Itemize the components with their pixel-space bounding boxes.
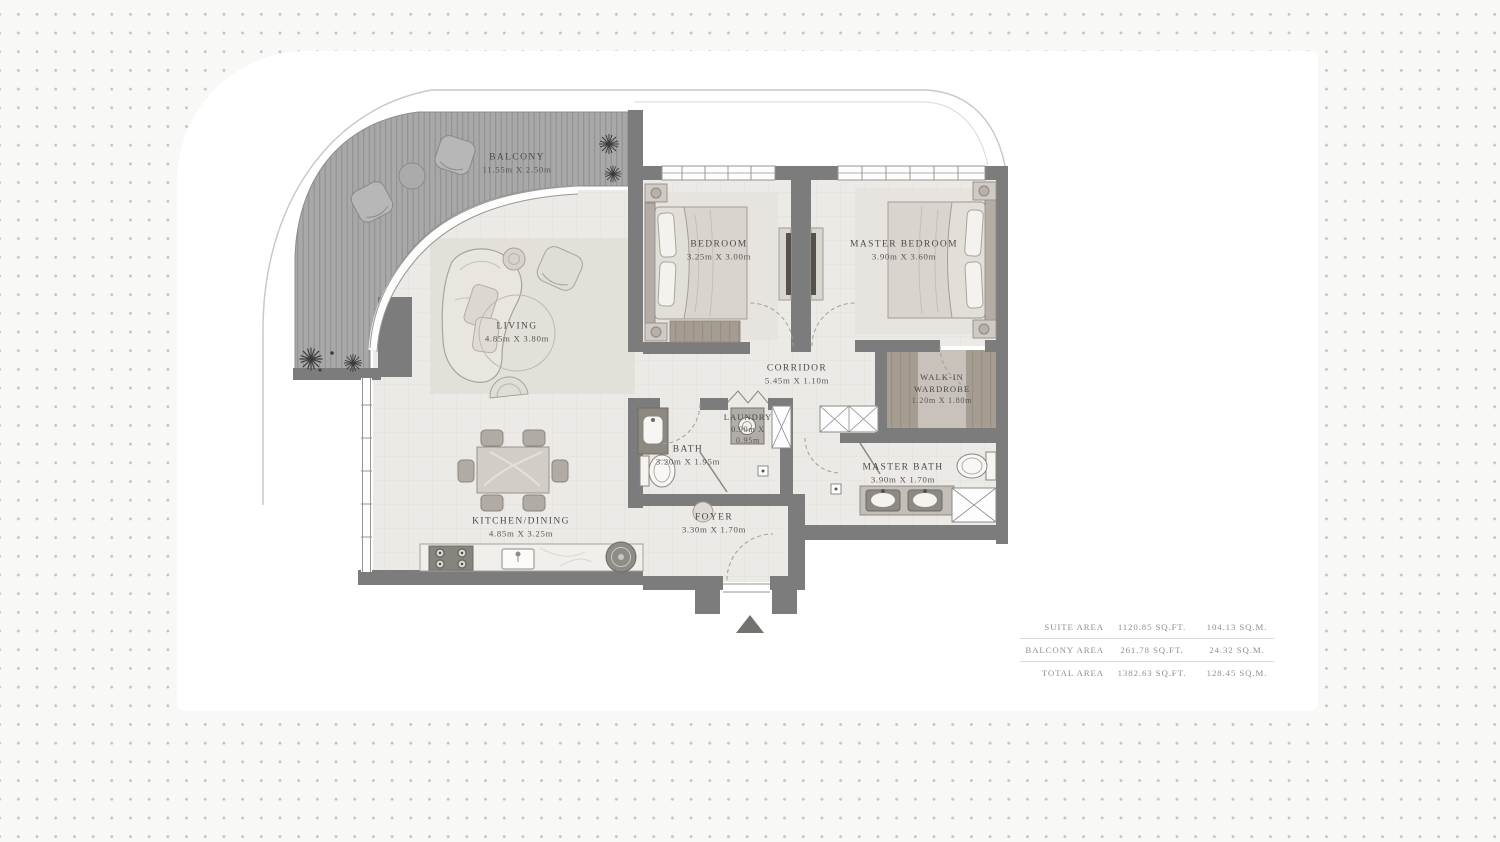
area-table-row: BALCONY AREA 261.78 SQ.FT. 24.32 SQ.M. <box>1020 638 1274 661</box>
wardrobe-floor <box>885 350 999 432</box>
area-row-sqm: 104.13 SQ.M. <box>1200 622 1274 632</box>
area-table-row: SUITE AREA 1120.85 SQ.FT. 104.13 SQ.M. <box>1020 616 1274 638</box>
area-row-sqft: 1382.63 SQ.FT. <box>1104 668 1200 678</box>
area-row-sqm: 128.45 SQ.M. <box>1200 668 1274 678</box>
area-row-sqft: 1120.85 SQ.FT. <box>1104 622 1200 632</box>
master-tv <box>811 233 816 295</box>
area-table: SUITE AREA 1120.85 SQ.FT. 104.13 SQ.M. B… <box>1020 616 1274 684</box>
area-row-sqft: 261.78 SQ.FT. <box>1104 645 1200 655</box>
area-row-label: SUITE AREA <box>1020 622 1104 632</box>
area-row-label: BALCONY AREA <box>1020 645 1104 655</box>
floor-plan-drawing <box>0 0 1500 842</box>
stove <box>429 546 473 570</box>
area-table-row: TOTAL AREA 1382.63 SQ.FT. 128.45 SQ.M. <box>1020 661 1274 684</box>
bedroom-bench <box>670 321 740 342</box>
entrance-arrow-icon <box>736 615 764 633</box>
foyer-pouf <box>693 502 713 522</box>
area-row-label: TOTAL AREA <box>1020 668 1104 678</box>
kitchen-counter <box>420 542 643 572</box>
area-row-sqm: 24.32 SQ.M. <box>1200 645 1274 655</box>
toilet-tank <box>640 456 649 486</box>
round-stool <box>503 248 525 270</box>
floorplan-page: { "plan": { "title": "apartment-floor-pl… <box>0 0 1500 842</box>
bedroom-tv <box>786 233 791 295</box>
